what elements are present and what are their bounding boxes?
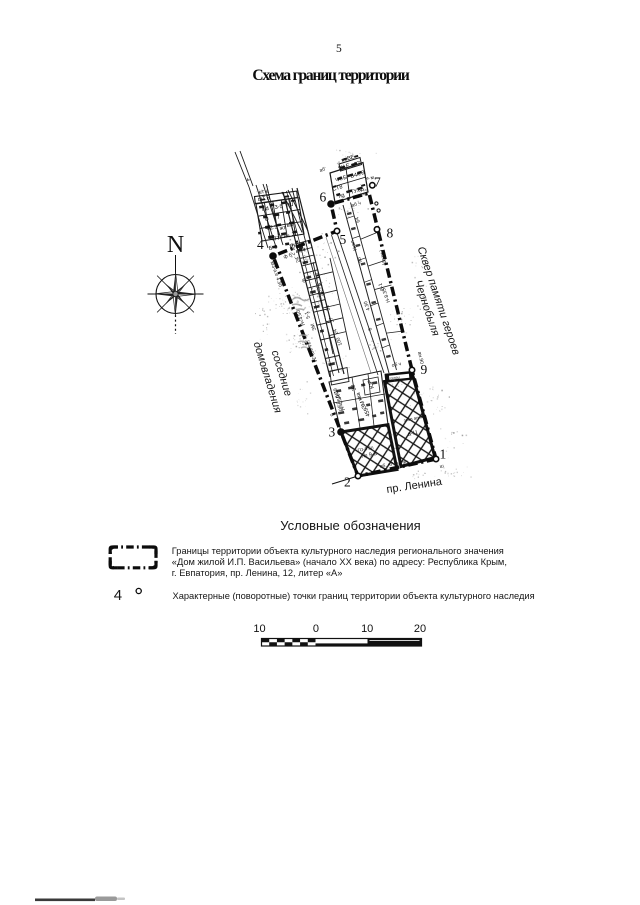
svg-text:3б.90: 3б.90 xyxy=(395,460,409,468)
svg-text:24: 24 xyxy=(332,328,340,335)
svg-text:8: 8 xyxy=(387,226,394,241)
svg-text:б: б xyxy=(328,413,335,418)
svg-text:3-5: 3-5 xyxy=(274,204,283,211)
svg-text:6: 6 xyxy=(320,190,327,205)
svg-text:ква: ква xyxy=(355,391,364,402)
svg-text:(чб.00): (чб.00) xyxy=(378,249,387,266)
svg-text:об ч: об ч xyxy=(391,361,402,369)
svg-text:9: 9 xyxy=(421,362,428,377)
svg-text:5: 5 xyxy=(340,232,347,247)
svg-text:1: 1 xyxy=(440,447,447,462)
svg-text:ан.90: ан.90 xyxy=(416,351,425,365)
svg-text:аб ч: аб ч xyxy=(351,200,362,209)
svg-text:4.30: 4.30 xyxy=(363,300,372,311)
svg-text:64: 64 xyxy=(354,216,362,223)
svg-text:0: 0 xyxy=(313,623,319,635)
svg-text:4: 4 xyxy=(257,237,264,252)
svg-text:Н-8.35: Н-8.35 xyxy=(381,287,392,303)
svg-text:31: 31 xyxy=(324,304,332,311)
svg-text:3: 3 xyxy=(329,425,336,440)
svg-text:5-1: 5-1 xyxy=(304,310,312,319)
svg-text:20: 20 xyxy=(414,623,426,635)
svg-text:10: 10 xyxy=(361,623,373,635)
svg-text:СТ8: СТ8 xyxy=(332,184,344,193)
svg-text:2: 2 xyxy=(344,475,351,490)
svg-text:N: N xyxy=(167,232,184,258)
svg-text:ш: ш xyxy=(439,463,444,470)
svg-text:юЗ-а.е: юЗ-а.е xyxy=(269,261,280,278)
svg-text:аб': аб' xyxy=(319,166,327,174)
svg-text:10: 10 xyxy=(253,623,265,635)
